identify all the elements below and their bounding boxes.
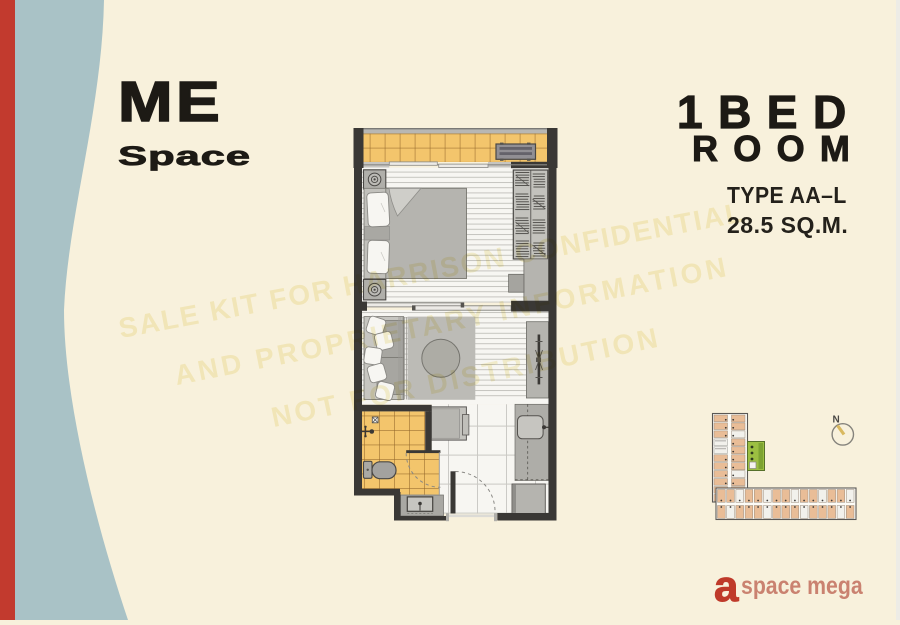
svg-text:N: N — [833, 415, 840, 426]
